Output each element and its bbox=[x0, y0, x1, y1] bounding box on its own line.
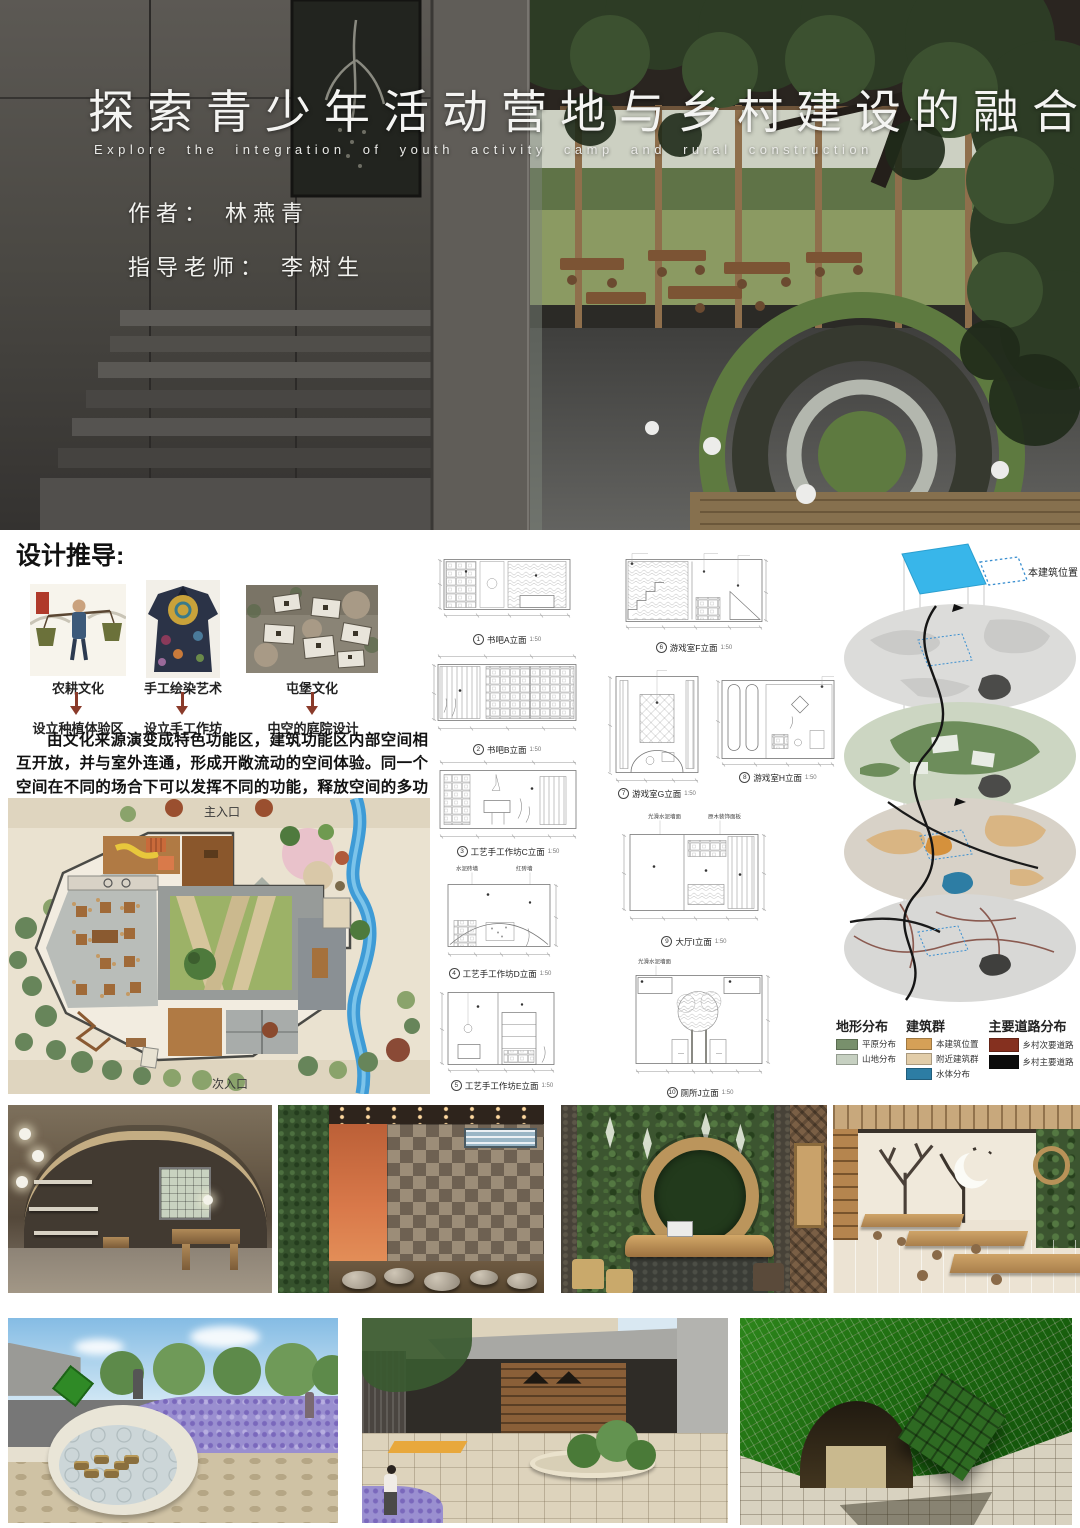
legend-roads: 主要道路分布 乡村次要道路 乡村主要道路 bbox=[989, 1016, 1074, 1080]
swatch-nearby-buildings bbox=[906, 1053, 932, 1065]
svg-text:光滑水泥墙面: 光滑水泥墙面 bbox=[638, 958, 672, 966]
elevation-panel-8: 8游戏室H立面1:50 bbox=[714, 672, 842, 784]
svg-text:水泥砖墙: 水泥砖墙 bbox=[456, 865, 479, 873]
culture-figure-tunbao bbox=[246, 585, 378, 678]
elevation-panel-10: 光滑水泥墙面 10厕所J立面1:50 bbox=[626, 955, 774, 1099]
derivation-arrow-2 bbox=[176, 692, 188, 715]
swatch-main-road bbox=[989, 1055, 1019, 1069]
map-legend: 地形分布 平原分布 山地分布 建筑群 本建筑位置 附近建筑群 水体分布 主要道路… bbox=[836, 1016, 1080, 1080]
legend-item: 水体分布 bbox=[906, 1068, 979, 1080]
legend-item: 乡村次要道路 bbox=[989, 1038, 1074, 1052]
legend-item: 山地分布 bbox=[836, 1053, 896, 1065]
svg-text:原木装饰面板: 原木装饰面板 bbox=[708, 813, 742, 821]
author-line: 作者： 林燕青 bbox=[128, 196, 309, 228]
legend-item: 本建筑位置 bbox=[906, 1038, 979, 1050]
legend-item: 附近建筑群 bbox=[906, 1053, 979, 1065]
derivation-arrow-1 bbox=[70, 692, 82, 715]
culture-figure-farming bbox=[30, 584, 126, 681]
elevation-panel-4: 水泥砖墙 红砖墙 4工艺手工作坊D立面1:50 bbox=[438, 862, 562, 980]
swatch-water bbox=[906, 1068, 932, 1080]
bare-trees-and-moon bbox=[858, 1131, 1036, 1225]
elevation-panel-7: 7游戏室G立面1:50 bbox=[606, 668, 708, 800]
site-analysis-stack: 本建筑位置 bbox=[840, 540, 1080, 1021]
derivation-heading: 设计推导: bbox=[16, 536, 124, 572]
legend-buildings: 建筑群 本建筑位置 附近建筑群 水体分布 bbox=[906, 1016, 979, 1080]
photo-parquet-wall-interior bbox=[278, 1105, 544, 1293]
elevation-panel-1: 1书吧A立面1:50 bbox=[436, 552, 578, 646]
legend-terrain: 地形分布 平原分布 山地分布 bbox=[836, 1016, 896, 1080]
legend-item: 平原分布 bbox=[836, 1038, 896, 1050]
elevation-panel-3: 3工艺手工作坊C立面1:50 bbox=[432, 758, 584, 858]
advisor-line: 指导老师： 李树生 bbox=[128, 250, 365, 282]
elevation-panel-2: 2书吧B立面1:50 bbox=[430, 652, 584, 756]
main-entrance-label: 主入口 bbox=[204, 805, 240, 819]
photo-lavender-plaza bbox=[8, 1318, 338, 1523]
legend-item: 乡村主要道路 bbox=[989, 1055, 1074, 1069]
hero-rendering: 探索青少年活动营地与乡村建设的融合 Explore the integratio… bbox=[0, 0, 1080, 530]
elevation-panel-5: 5工艺手工作坊E立面1:50 bbox=[438, 982, 566, 1092]
derivation-arrow-3 bbox=[306, 692, 318, 715]
svg-text:光滑水泥墙面: 光滑水泥墙面 bbox=[648, 813, 682, 821]
photo-plant-wall-reception bbox=[561, 1105, 827, 1293]
design-poster: 探索青少年活动营地与乡村建设的融合 Explore the integratio… bbox=[0, 0, 1080, 1528]
site-plan: 主入口 次入口 bbox=[8, 798, 430, 1099]
photo-entrance-courtyard bbox=[362, 1318, 728, 1523]
swatch-plain bbox=[836, 1039, 858, 1050]
secondary-entrance-label: 次入口 bbox=[212, 1077, 248, 1091]
swatch-this-building bbox=[906, 1038, 932, 1050]
photo-grass-arch-structure bbox=[740, 1318, 1072, 1525]
svg-text:红砖墙: 红砖墙 bbox=[516, 865, 533, 873]
photo-workshop-arch-interior bbox=[8, 1105, 272, 1293]
elevation-panel-6: 6游戏室F立面1:50 bbox=[618, 550, 770, 654]
swatch-mountain bbox=[836, 1054, 858, 1065]
marker-label: 本建筑位置 bbox=[1028, 566, 1078, 579]
poster-title: 探索青少年活动营地与乡村建设的融合 bbox=[88, 76, 1048, 142]
poster-subtitle-en: Explore the integration of youth activit… bbox=[94, 142, 1034, 157]
elevation-panel-9: 光滑水泥墙面 原木装饰面板 9大厅I立面1:50 bbox=[620, 810, 768, 948]
swatch-secondary-road bbox=[989, 1038, 1019, 1052]
culture-figure-dye-art bbox=[146, 580, 220, 683]
photo-dining-hall bbox=[833, 1105, 1080, 1293]
